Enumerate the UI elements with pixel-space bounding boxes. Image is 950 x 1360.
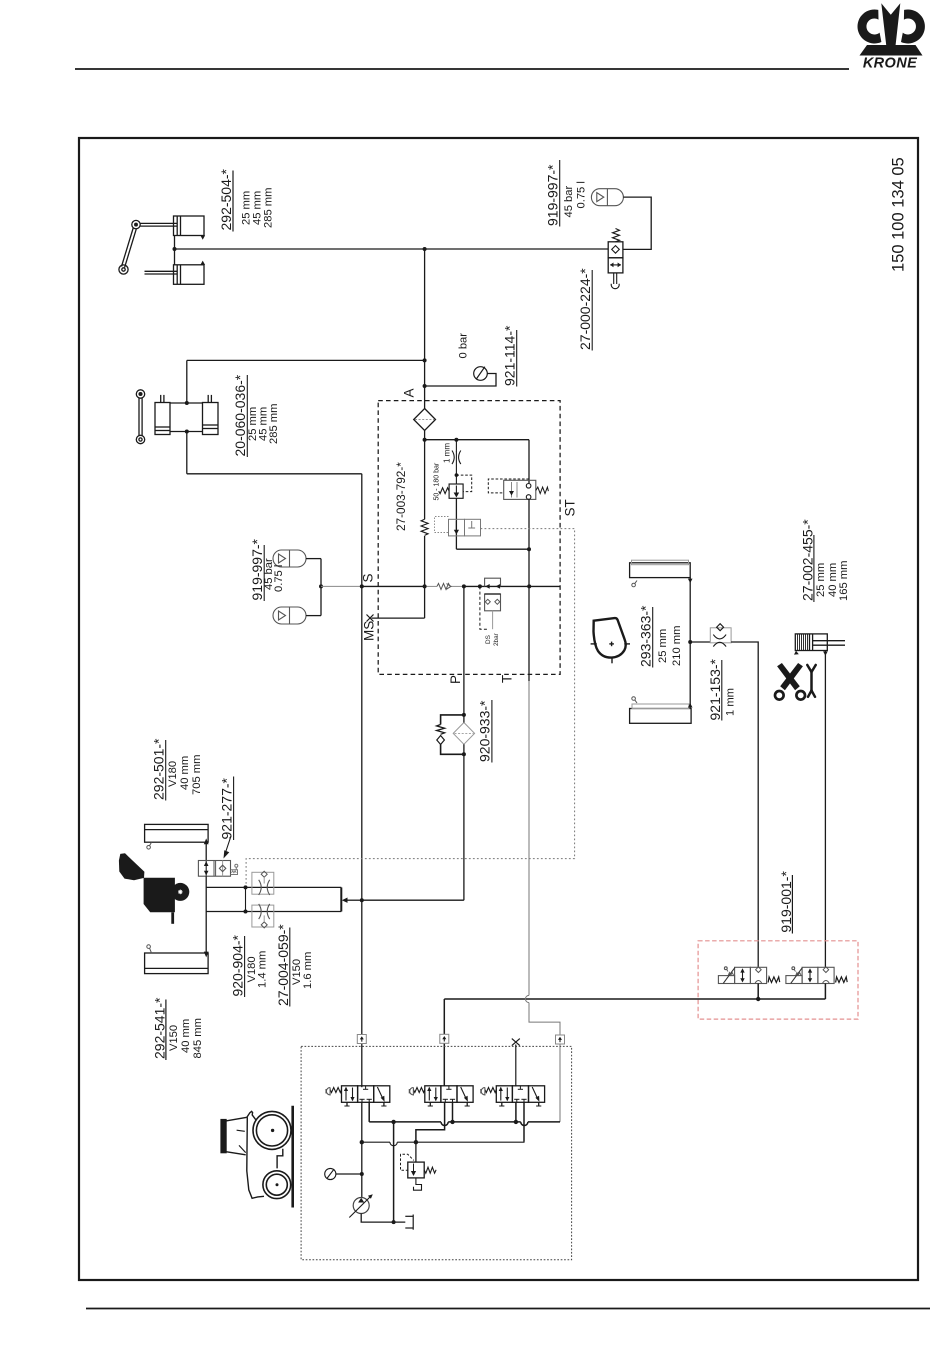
- svg-text:919-997-*: 919-997-*: [545, 164, 561, 226]
- svg-text:40 mm: 40 mm: [180, 1019, 192, 1053]
- svg-text:T: T: [500, 675, 515, 683]
- svg-text:27-003-792-*: 27-003-792-*: [394, 462, 408, 531]
- svg-text:150 100 134 05: 150 100 134 05: [890, 157, 908, 272]
- svg-text:S: S: [361, 573, 376, 582]
- svg-text:ST: ST: [563, 499, 578, 516]
- svg-text:V180: V180: [167, 761, 179, 787]
- svg-text:27-000-224-*: 27-000-224-*: [577, 268, 593, 350]
- svg-text:45 bar: 45 bar: [563, 186, 575, 218]
- svg-text:25 mm: 25 mm: [815, 563, 827, 597]
- svg-text:285 mm: 285 mm: [268, 404, 280, 444]
- svg-text:0.75 l: 0.75 l: [576, 181, 588, 208]
- svg-text:25 mm: 25 mm: [657, 629, 669, 663]
- svg-text:2bar: 2bar: [493, 632, 500, 646]
- svg-text:DS: DS: [485, 635, 492, 644]
- svg-text:210 mm: 210 mm: [671, 626, 683, 666]
- svg-text:921-114-*: 921-114-*: [502, 325, 518, 386]
- svg-text:920-933-*: 920-933-*: [477, 700, 493, 762]
- svg-text:50 - 180 bar: 50 - 180 bar: [434, 462, 441, 500]
- svg-text:919-001-*: 919-001-*: [778, 871, 794, 933]
- svg-text:27-004-059-*: 27-004-059-*: [275, 924, 291, 1006]
- svg-text:285 mm: 285 mm: [263, 188, 275, 228]
- svg-text:1.6 mm: 1.6 mm: [302, 952, 314, 989]
- svg-text:1 mm: 1 mm: [725, 688, 737, 716]
- svg-text:P: P: [448, 675, 463, 684]
- svg-text:705 mm: 705 mm: [191, 755, 203, 795]
- svg-text:165 mm: 165 mm: [838, 561, 850, 601]
- svg-text:V150: V150: [168, 1025, 180, 1051]
- svg-text:27-002-455-*: 27-002-455-*: [799, 519, 815, 601]
- svg-text:1.4 mm: 1.4 mm: [256, 951, 268, 988]
- svg-text:921-153-*: 921-153-*: [707, 658, 723, 720]
- svg-text:845 mm: 845 mm: [192, 1018, 204, 1058]
- svg-text:40 mm: 40 mm: [179, 756, 191, 790]
- svg-text:KRONE: KRONE: [863, 56, 918, 72]
- svg-text:20-060-036-*: 20-060-036-*: [232, 374, 248, 456]
- svg-text:292-501-*: 292-501-*: [151, 738, 167, 800]
- svg-text:920-904-*: 920-904-*: [230, 934, 246, 996]
- svg-text:292-504-*: 292-504-*: [218, 168, 234, 230]
- svg-text:0.75 l: 0.75 l: [273, 565, 285, 592]
- svg-text:MS: MS: [362, 621, 377, 641]
- svg-text:A: A: [402, 388, 417, 397]
- svg-text:0 bar: 0 bar: [458, 333, 470, 359]
- svg-text:921-277-*: 921-277-*: [219, 777, 235, 839]
- svg-text:1 mm: 1 mm: [443, 443, 452, 463]
- svg-text:293-363-*: 293-363-*: [638, 605, 654, 667]
- svg-text:292-541-*: 292-541-*: [152, 997, 168, 1059]
